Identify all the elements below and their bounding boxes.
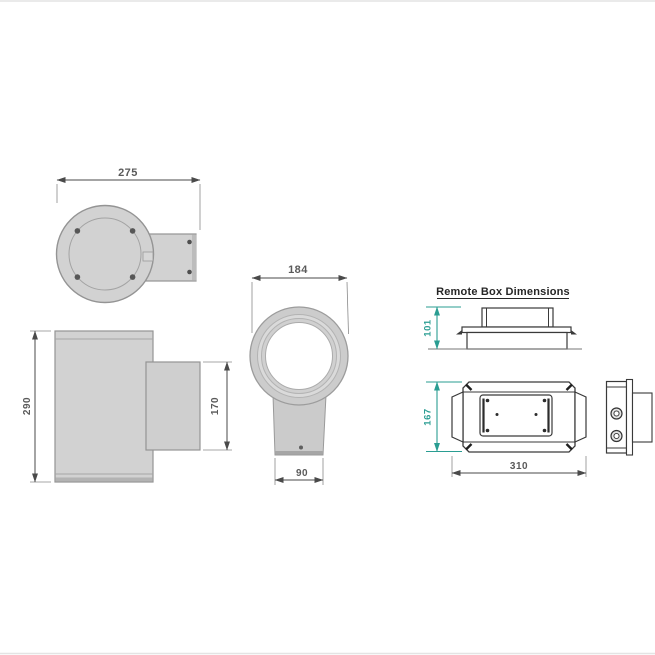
elevation-base-box: [467, 333, 567, 350]
body-screw-dot: [130, 228, 136, 234]
elevation-top-housing: [482, 308, 553, 327]
plan-gear-plate: [480, 395, 552, 436]
front-view-aperture: [266, 323, 333, 390]
remote-box-plan-view: 167 310: [423, 382, 587, 477]
plate-center-dot: [496, 413, 499, 416]
side-view-mounting-arm: [146, 362, 200, 450]
plate-screw-dot: [543, 399, 547, 403]
remote-box-side-view: [607, 380, 653, 456]
plan-right-clip: [575, 392, 586, 442]
arm-screw-dot: [187, 270, 192, 275]
remote-box-section-title: Remote Box Dimensions: [436, 286, 570, 298]
elevation-right-tab: [571, 330, 577, 335]
arm-screw-dot: [187, 240, 192, 245]
technical-drawing-page: 275 290 170: [0, 0, 655, 655]
side-profile-body: [633, 393, 653, 442]
side-view-body: [55, 331, 153, 482]
dim-label-90: 90: [296, 468, 308, 479]
dim-remote-box-height: 101: [423, 307, 462, 349]
fixture-front-view: 184 90: [250, 264, 349, 485]
cable-gland-hole: [614, 433, 619, 438]
front-view-stem-base-band: [276, 451, 323, 455]
luminaire-dimension-drawing: 275 290 170: [0, 0, 655, 655]
fixture-side-view: 290 170: [22, 331, 232, 482]
dim-label-310: 310: [510, 461, 528, 472]
cable-gland-hole: [614, 411, 619, 416]
body-screw-dot: [130, 274, 136, 280]
top-view-body-circle: [57, 206, 154, 303]
dim-label-290: 290: [22, 397, 33, 415]
elevation-lid-plate: [462, 327, 571, 333]
dim-bracket-width: 90: [275, 458, 323, 485]
plate-screw-dot: [486, 399, 490, 403]
plan-left-clip: [452, 392, 463, 442]
dim-bracket-height: 170: [203, 362, 232, 450]
side-view-bottom-band: [56, 478, 153, 482]
dim-label-167: 167: [423, 408, 434, 425]
dim-label-275: 275: [118, 167, 138, 179]
fixture-top-view: 275: [57, 167, 201, 303]
body-screw-dot: [75, 274, 81, 280]
stem-screw-dot: [299, 446, 303, 450]
remote-box-elevation-view: 101: [423, 307, 583, 349]
dim-body-height: 290: [22, 331, 51, 482]
remote-box-section: Remote Box Dimensions 101: [423, 286, 653, 477]
body-screw-dot: [75, 228, 81, 234]
elevation-left-tab: [456, 330, 462, 335]
dim-label-101: 101: [423, 319, 434, 337]
arm-hinge-notch: [143, 252, 153, 261]
dim-remote-box-width: 310: [452, 456, 586, 477]
plate-center-dot: [535, 413, 538, 416]
dim-label-170: 170: [210, 397, 221, 415]
side-profile-flange: [627, 380, 633, 456]
top-view-arm-end-plate: [192, 235, 197, 281]
plate-screw-dot: [486, 429, 490, 433]
plate-screw-dot: [543, 429, 547, 433]
dim-label-184: 184: [288, 264, 308, 276]
